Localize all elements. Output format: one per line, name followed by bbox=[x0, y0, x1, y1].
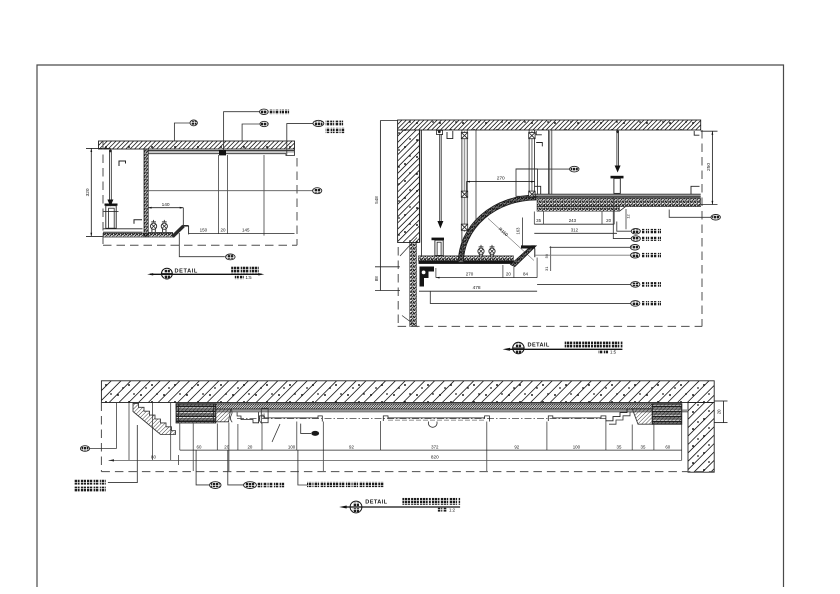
svg-text:92: 92 bbox=[514, 444, 519, 449]
svg-text:1:5: 1:5 bbox=[610, 350, 617, 355]
svg-text:548: 548 bbox=[374, 196, 379, 204]
svg-text:250: 250 bbox=[706, 163, 712, 171]
svg-text:243: 243 bbox=[569, 218, 577, 223]
svg-text:145: 145 bbox=[242, 228, 250, 233]
svg-text:60: 60 bbox=[197, 444, 202, 449]
svg-text:88: 88 bbox=[374, 276, 379, 282]
svg-text:35: 35 bbox=[536, 218, 541, 223]
svg-text:100: 100 bbox=[288, 444, 296, 449]
svg-text:270: 270 bbox=[466, 272, 474, 277]
svg-text:1:2: 1:2 bbox=[449, 507, 456, 512]
svg-text:20: 20 bbox=[224, 444, 229, 449]
svg-text:35: 35 bbox=[617, 444, 622, 449]
svg-text:DETAIL: DETAIL bbox=[528, 343, 550, 349]
svg-text:60: 60 bbox=[665, 444, 670, 449]
svg-text:100: 100 bbox=[573, 444, 581, 449]
svg-text:84: 84 bbox=[523, 272, 529, 277]
svg-text:DETAIL: DETAIL bbox=[365, 500, 387, 506]
svg-text:163: 163 bbox=[516, 227, 521, 235]
svg-text:372: 372 bbox=[431, 444, 439, 449]
svg-text:92: 92 bbox=[349, 444, 354, 449]
svg-text:20: 20 bbox=[717, 409, 722, 414]
svg-text:20: 20 bbox=[506, 272, 512, 277]
svg-text:320: 320 bbox=[85, 188, 91, 196]
svg-text:270: 270 bbox=[497, 175, 505, 181]
svg-text:31: 31 bbox=[544, 266, 549, 271]
svg-text:312: 312 bbox=[571, 227, 579, 232]
svg-text:12: 12 bbox=[625, 214, 630, 218]
svg-text:20: 20 bbox=[247, 444, 252, 449]
svg-text:478: 478 bbox=[473, 285, 481, 291]
svg-text:DETAIL: DETAIL bbox=[175, 268, 198, 274]
svg-text:20: 20 bbox=[220, 228, 226, 233]
svg-text:35: 35 bbox=[641, 444, 646, 449]
svg-text:80: 80 bbox=[151, 455, 156, 460]
svg-text:1:5: 1:5 bbox=[246, 275, 253, 280]
svg-text:150: 150 bbox=[200, 228, 208, 233]
svg-text:140: 140 bbox=[162, 202, 170, 208]
svg-text:820: 820 bbox=[431, 454, 439, 459]
svg-text:20: 20 bbox=[606, 218, 611, 223]
svg-text:50: 50 bbox=[544, 253, 549, 258]
